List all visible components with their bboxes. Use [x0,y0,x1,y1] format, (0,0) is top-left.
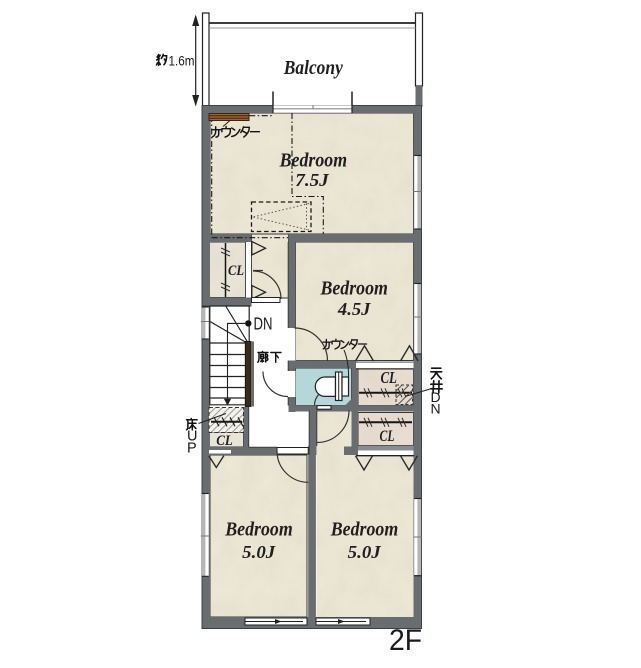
svg-text:Balcony: Balcony [283,57,344,79]
svg-text:5.0J: 5.0J [348,542,382,562]
svg-text:Bedroom: Bedroom [224,519,292,541]
svg-text:CL: CL [380,368,397,387]
svg-text:2F: 2F [389,624,422,657]
svg-text:P: P [187,441,197,457]
svg-text:CL: CL [228,263,244,279]
svg-text:Bedroom: Bedroom [320,278,388,300]
svg-text:N: N [431,401,441,417]
svg-text:DN: DN [254,314,273,334]
svg-text:CL: CL [216,433,233,449]
svg-text:Bedroom: Bedroom [279,150,347,172]
svg-text:7.5J: 7.5J [295,170,330,190]
svg-text:CL: CL [380,428,395,445]
svg-text:5.0J: 5.0J [242,542,276,562]
svg-text:4.5J: 4.5J [337,299,372,319]
svg-text:1.6m: 1.6m [169,53,195,69]
svg-text:Bedroom: Bedroom [330,519,398,541]
